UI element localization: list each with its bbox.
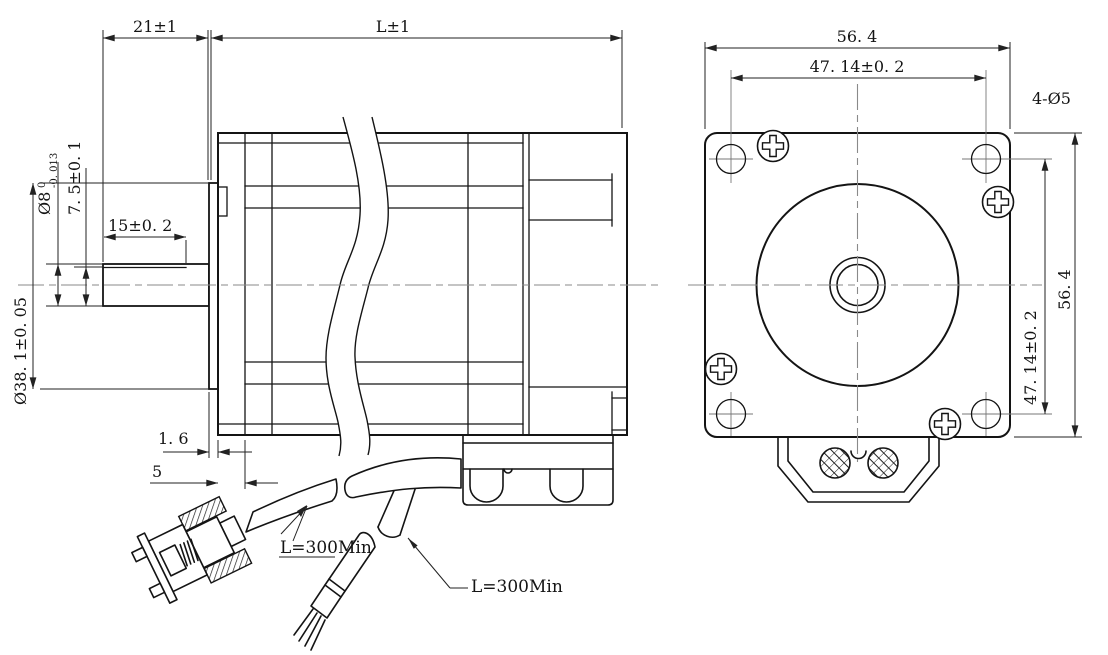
- front-view: 56. 4 47. 14±0. 2 4-Ø5 47. 14±0. 2 56. 4: [688, 27, 1082, 502]
- db9-connector: [127, 495, 257, 609]
- mount-holes-label: 4-Ø5: [1032, 89, 1071, 108]
- dim-pilot-dia: Ø38. 1±0. 05: [11, 297, 30, 405]
- cable-a-length-label: L=300Min: [280, 538, 372, 558]
- rear-cap: [529, 174, 627, 434]
- cable-cross-section: [820, 448, 850, 478]
- dim-plate-thickness: 1. 6: [158, 429, 189, 448]
- dim-width: 56. 4: [837, 27, 878, 46]
- cable-b-length-label: L=300Min: [471, 577, 563, 597]
- front-tab: [218, 187, 227, 216]
- phillips-screw-icon: [706, 354, 737, 385]
- cable-slot: [470, 469, 503, 502]
- technical-drawing: L=300Min L=300Min 21±1 L±1 15±0. 2: [0, 0, 1108, 655]
- cable-slot: [550, 469, 583, 502]
- terminal-block-front: [778, 437, 939, 502]
- dim-flat-length: 15±0. 2: [108, 216, 172, 235]
- dim-shaft-dia: Ø8 0 -0. 013: [30, 153, 60, 215]
- dim-hole-spacing-side: 47. 14±0. 2: [1021, 310, 1040, 405]
- side-view: L=300Min L=300Min 21±1 L±1 15±0. 2: [11, 17, 662, 650]
- mounting-holes: [709, 70, 1052, 436]
- front-plate: [209, 183, 218, 389]
- dim-hole-spacing-top: 47. 14±0. 2: [810, 57, 905, 76]
- dim-flat-height: 7. 5±0. 1: [65, 141, 84, 215]
- break-lines: [326, 117, 388, 456]
- dim-body-length: L±1: [376, 17, 410, 36]
- motor-body: [218, 133, 627, 435]
- phillips-screw-icon: [983, 187, 1014, 218]
- dim-front-length: 21±1: [133, 17, 177, 36]
- cable-a: [246, 458, 461, 532]
- cable-b-leader: L=300Min: [408, 538, 563, 597]
- cable-cross-section: [868, 448, 898, 478]
- terminal-block-side: [463, 435, 613, 505]
- dim-height: 56. 4: [1055, 269, 1074, 310]
- side-dimensions: 21±1 L±1 15±0. 2 Ø8 0 -0. 013: [11, 17, 622, 489]
- phillips-screw-icon: [758, 131, 789, 162]
- phillips-screw-icon: [930, 409, 961, 440]
- dim-boss-depth: 5: [152, 462, 162, 481]
- pigtail-wires: [294, 609, 325, 650]
- front-dimensions: 56. 4 47. 14±0. 2 4-Ø5 47. 14±0. 2 56. 4: [705, 27, 1082, 437]
